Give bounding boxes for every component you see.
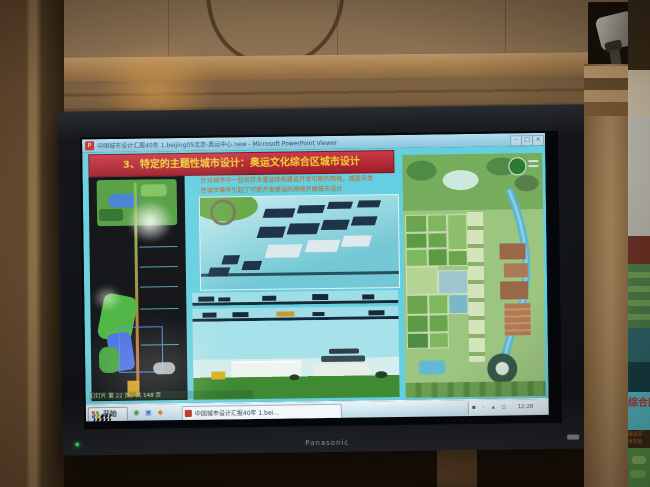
rendered-pavilion-base: [313, 363, 369, 376]
tray-icon[interactable]: ◦: [482, 404, 486, 411]
side-teal-band: [628, 328, 650, 362]
map-boundary-box: [119, 326, 164, 373]
plan-bottom-band: [405, 381, 545, 398]
skyline-elevation-strip: [192, 290, 398, 306]
close-button[interactable]: ×: [532, 135, 544, 146]
perspective-rendering-panel: [193, 319, 400, 400]
windows-flag-icon: [92, 411, 100, 419]
aerial-building: [263, 208, 296, 217]
plan-stadium: [487, 353, 517, 383]
plan-glass-hall: [438, 270, 468, 294]
pavilion-upper-roof: [329, 349, 359, 354]
plan-lake: [442, 170, 478, 191]
quick-launch-icon[interactable]: ▣: [144, 408, 153, 417]
window-title: 中国城市设计汇报40年 1.beijing05北京-奥运中心.new - Mic…: [97, 136, 467, 151]
pillar-molding: [584, 78, 632, 90]
screen-glare: [127, 200, 174, 243]
map-light-blob: [153, 362, 175, 374]
plan-emblem: [508, 157, 526, 175]
aerial-building: [241, 261, 262, 270]
plan-block: [407, 333, 429, 349]
powerpoint-slide: 3、特定的主题性城市设计：奥运文化综合区城市设计: [82, 146, 548, 404]
slide-paragraph: 针对城市中一些尚存多重选择和建设开发可能的用地，或是突发 性城市事件引起了可能开…: [201, 174, 401, 197]
aerial-building: [207, 267, 230, 276]
plan-block: [406, 315, 428, 333]
elevation-building: [198, 297, 214, 302]
aerial-white-hall: [265, 244, 303, 258]
plan-block: [428, 294, 448, 314]
aerial-rendering-panel: [199, 194, 400, 291]
plan-block: [406, 266, 438, 294]
aerial-building: [257, 227, 286, 238]
elevation-baseline: [192, 300, 398, 306]
aerial-white-hall: [305, 240, 341, 253]
aerial-spiral: [210, 199, 236, 225]
system-tray: ▪ ◦ ▴ ▫ 12:28: [468, 401, 548, 415]
tray-icon[interactable]: ▫: [502, 403, 506, 410]
side-map-blob: [630, 470, 646, 478]
aerial-road: [201, 271, 399, 277]
start-button[interactable]: 开始: [88, 407, 128, 422]
wood-post: [437, 446, 477, 487]
plan-building-cluster: [504, 263, 528, 277]
elevation-baseline: [193, 316, 399, 322]
tray-icon[interactable]: ▴: [492, 404, 495, 411]
plan-block: [428, 314, 448, 332]
pillar-molding: [584, 90, 632, 102]
elevation-building: [312, 294, 328, 300]
aerial-building: [321, 220, 350, 230]
plan-central-axis: [467, 212, 485, 362]
panasonic-logo: Panasonic: [62, 435, 592, 450]
master-plan-map: [402, 153, 545, 398]
plan-red-complex: [504, 303, 530, 335]
aerial-white-hall: [341, 235, 372, 246]
plan-river: [402, 153, 545, 398]
quick-launch-icon[interactable]: ◉: [132, 409, 141, 418]
plan-block: [428, 248, 448, 266]
plan-pool-block: [448, 294, 468, 314]
side-wall-band: [628, 70, 650, 116]
screen-glare: [92, 285, 122, 311]
minimize-button[interactable]: –: [510, 135, 522, 146]
map-area: [99, 209, 123, 221]
map-tick: [140, 266, 178, 268]
aerial-building: [287, 223, 320, 234]
powerpoint-doc-icon: P: [85, 141, 94, 150]
side-map-blob: [632, 456, 646, 464]
tv-screen: P 中国城市设计汇报40年 1.beijing05北京-奥运中心.new - M…: [80, 131, 562, 430]
second-screen-edge: 综合区城市设计 建设开发可能的用地开展城市设计: [628, 0, 650, 487]
plan-block: [429, 332, 449, 348]
elevation-building: [232, 312, 248, 317]
plan-block: [448, 250, 468, 266]
photo-room-scene: P 中国城市设计汇报40年 1.beijing05北京-奥运中心.new - M…: [0, 0, 650, 487]
maximize-button[interactable]: □: [521, 135, 533, 146]
paragraph-line: 针对城市中一些尚存多重选择和建设开发可能的用地，或是突发: [201, 174, 377, 185]
side-map-band: [628, 264, 650, 328]
map-green-area: [96, 292, 138, 344]
side-paragraph-fragment: 建设开发可能的用地开展城市设计: [628, 430, 646, 444]
right-pillar: [584, 64, 632, 487]
aerial-building: [221, 255, 240, 264]
city-axis-map: [89, 176, 188, 401]
taskbar-clock[interactable]: 12:28: [518, 403, 534, 410]
elevation-building: [262, 296, 276, 301]
elevation-building: [202, 313, 216, 318]
pillar-molding: [584, 102, 632, 116]
pillar-molding: [584, 66, 632, 78]
start-label: 开始: [103, 409, 117, 419]
map-area: [141, 184, 167, 196]
tray-icon[interactable]: ▪: [472, 404, 476, 411]
aerial-building: [327, 202, 353, 209]
forest-blob: [515, 175, 539, 191]
rendered-yellow-object: [211, 371, 225, 379]
aerial-green-hill: [199, 194, 258, 222]
plan-block: [406, 295, 428, 315]
rendered-hall: [231, 360, 301, 377]
slide-counter-osd: 幻灯片 第 22 页，共 148 页: [90, 390, 254, 400]
elevation-building: [368, 310, 384, 315]
side-trim-band: [628, 236, 650, 264]
elevation-building-gold: [276, 311, 294, 316]
elevation-building: [218, 297, 230, 301]
plan-pool: [419, 360, 445, 374]
map-area: [97, 179, 178, 226]
map-axis-line: [134, 183, 140, 395]
map-green-area: [99, 347, 119, 373]
tv-panasonic: P 中国城市设计汇报40年 1.beijing05北京-奥运中心.new - M…: [58, 104, 593, 455]
skyline-elevation-strip: [192, 306, 398, 322]
map-water: [109, 194, 139, 208]
windows-desktop: P 中国城市设计汇报40年 1.beijing05北京-奥运中心.new - M…: [82, 133, 549, 421]
screen-glare: [82, 315, 236, 421]
aerial-building: [297, 205, 325, 213]
plan-block: [427, 214, 447, 232]
elevation-building: [312, 312, 324, 316]
task-doc-icon: [185, 410, 192, 417]
window-titlebar[interactable]: P 中国城市设计汇报40年 1.beijing05北京-奥运中心.new - M…: [82, 133, 545, 152]
map-tick: [140, 246, 178, 248]
map-tick: [140, 286, 178, 288]
plan-building-cluster: [500, 243, 526, 259]
windows-taskbar[interactable]: 开始 ◉ ▣ ◆ 中国城市设计汇报40年 1.bei... ▪ ◦ ▴ ▫ 12…: [86, 398, 549, 421]
power-led: [75, 442, 79, 446]
plan-forest-band: [402, 153, 543, 211]
elevation-building: [362, 294, 374, 299]
plan-block: [406, 249, 428, 267]
shrub: [375, 371, 387, 378]
map-water: [106, 331, 136, 372]
aerial-building: [351, 216, 378, 225]
map-tick: [140, 308, 178, 310]
plan-legend-line: [528, 160, 538, 162]
aerial-building: [357, 200, 381, 207]
forest-blob: [406, 160, 436, 180]
map-tick: [141, 344, 179, 346]
plan-block: [447, 214, 468, 250]
pavilion-roof: [321, 355, 365, 362]
side-dark-band: [628, 362, 650, 392]
taskbar-task-button[interactable]: 中国城市设计汇报40年 1.bei...: [182, 404, 342, 421]
map-orange-block: [127, 381, 139, 397]
side-light-band: [628, 116, 650, 236]
plan-block: [405, 233, 427, 249]
forest-blob: [486, 157, 516, 175]
shrub: [289, 374, 299, 380]
plan-building-cluster: [500, 281, 528, 299]
side-heading-fragment: 综合区城市设计: [628, 394, 650, 410]
slide-heading: 3、特定的主题性城市设计：奥运文化综合区城市设计: [88, 150, 394, 177]
quick-launch-icon[interactable]: ◆: [156, 408, 165, 417]
paragraph-line: 性城市事件引起了可能开发建设的用地开展城市设计: [201, 184, 377, 195]
plan-block: [427, 232, 447, 248]
task-button-label: 中国城市设计汇报40年 1.bei...: [195, 407, 337, 418]
plan-block: [405, 215, 427, 233]
left-pillar: [0, 0, 64, 487]
side-map-bottom: [628, 448, 650, 487]
plan-legend-line: [528, 165, 538, 167]
bezel-model-label: [567, 434, 579, 439]
